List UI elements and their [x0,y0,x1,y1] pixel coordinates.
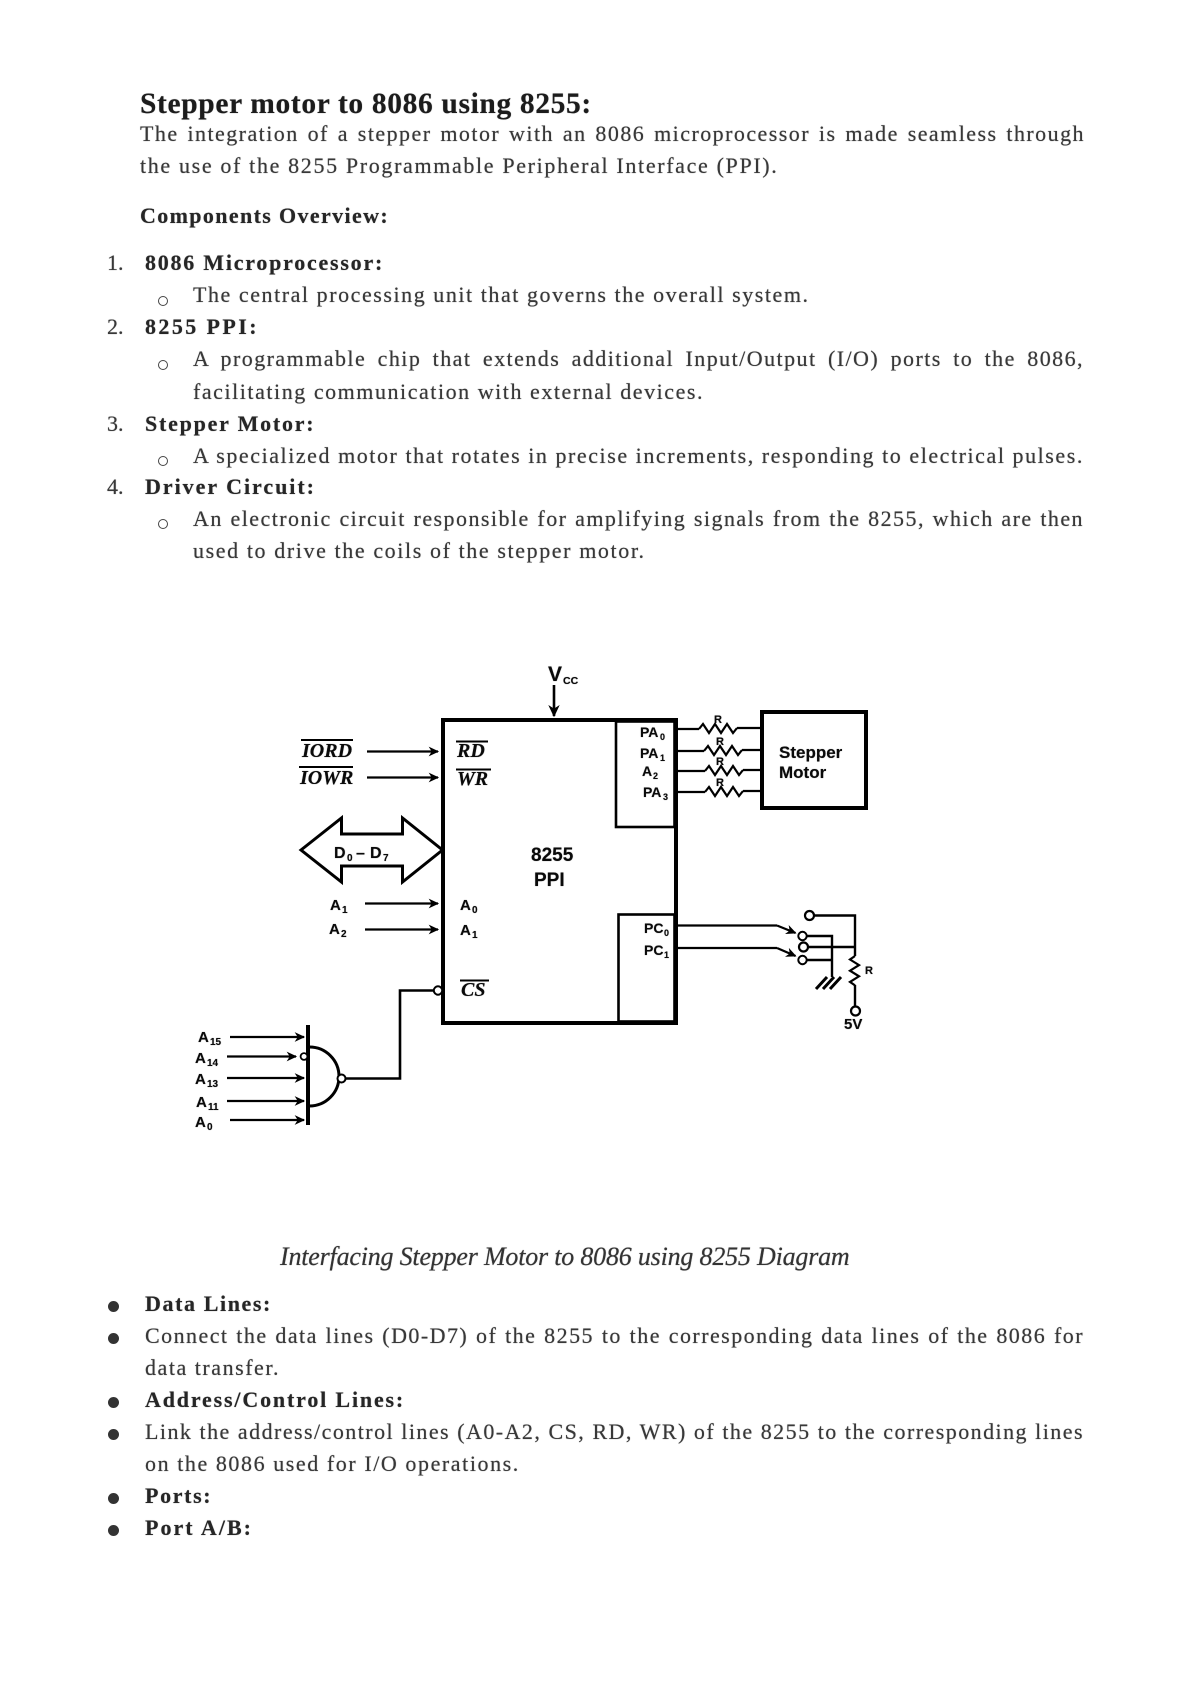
svg-text:CC: CC [563,675,579,687]
svg-text:RD: RD [456,740,485,762]
svg-text:5V: 5V [844,1016,862,1033]
svg-text:R: R [716,736,724,748]
svg-text:13: 13 [207,1079,219,1090]
svg-text:7: 7 [383,853,389,864]
svg-text:A: A [195,1114,206,1131]
svg-text:A: A [460,897,471,914]
svg-text:A: A [460,922,471,939]
svg-text:R: R [716,777,724,789]
svg-text:1: 1 [664,950,669,960]
svg-text:PC: PC [644,942,663,958]
svg-text:A: A [195,1071,206,1088]
svg-text:3: 3 [663,792,668,802]
svg-text:1: 1 [342,905,348,916]
svg-text:8255: 8255 [531,845,574,866]
svg-text:–: – [356,845,365,862]
svg-text:15: 15 [210,1037,222,1048]
svg-text:14: 14 [207,1058,219,1069]
svg-text:IOWR: IOWR [299,767,353,789]
svg-text:A: A [198,1029,209,1046]
svg-text:Motor: Motor [779,763,827,782]
svg-text:PA: PA [640,745,658,761]
svg-text:D: D [334,845,346,862]
svg-text:A: A [329,921,340,938]
svg-text:PPI: PPI [534,870,565,891]
svg-text:R: R [865,965,873,977]
svg-text:PC: PC [644,920,663,936]
svg-text:2: 2 [653,771,658,781]
svg-text:1: 1 [472,930,478,941]
svg-text:1: 1 [660,753,665,763]
svg-text:WR: WR [457,768,488,790]
svg-text:R: R [714,714,722,726]
svg-text:PA: PA [643,784,661,800]
svg-text:CS: CS [461,979,485,1001]
svg-text:0: 0 [472,905,478,916]
svg-text:D: D [370,845,382,862]
svg-text:11: 11 [208,1102,219,1113]
svg-text:A: A [642,763,652,779]
svg-text:A: A [195,1050,206,1067]
svg-text:R: R [716,756,724,768]
svg-text:A: A [330,897,341,914]
svg-text:0: 0 [347,853,353,864]
svg-text:0: 0 [664,928,669,938]
svg-text:Stepper: Stepper [779,743,843,762]
svg-text:PA: PA [640,724,658,740]
svg-text:0: 0 [207,1122,213,1133]
svg-text:A: A [196,1094,207,1111]
svg-text:IORD: IORD [301,740,352,762]
svg-text:V: V [548,663,562,686]
svg-text:0: 0 [660,732,665,742]
svg-text:2: 2 [341,929,347,940]
